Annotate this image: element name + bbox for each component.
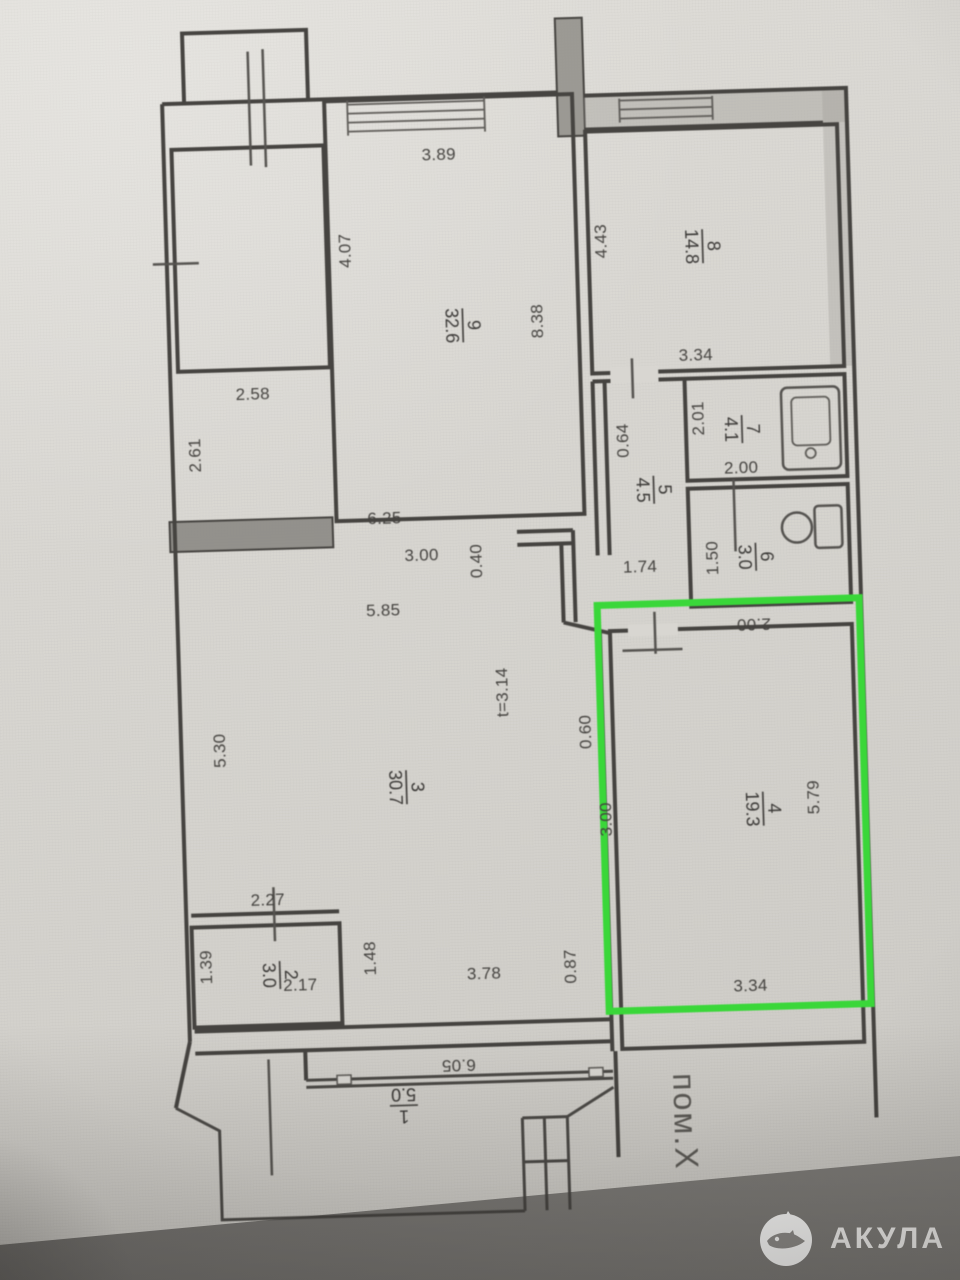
dim-room2-left: 1.39: [196, 950, 216, 985]
svg-text:19.3: 19.3: [742, 791, 763, 827]
door-opening-room4: [628, 623, 678, 636]
room-label-8: 8 14.8: [681, 228, 724, 264]
svg-text:4.1: 4.1: [721, 417, 742, 443]
radiator-mark-left: [337, 1075, 351, 1084]
toilet-icon: [781, 505, 842, 549]
dim-room9-right: 8.38: [527, 304, 547, 339]
room-label-3: 3 30.7: [385, 769, 428, 805]
svg-text:4: 4: [764, 803, 784, 814]
dim-060: 0.60: [575, 714, 595, 749]
highlight-room-4: [597, 598, 871, 1012]
dim-topleft-left: 2.61: [185, 438, 205, 473]
radiator-mark-right: [589, 1068, 603, 1077]
svg-text:9: 9: [464, 320, 484, 331]
photo-of-floor-plan: 9 32.6 8 14.8 7 4.1 5 4.5 6 3.0 3 30.7: [0, 0, 960, 1280]
dim-corridor-040: 0.40: [466, 544, 486, 579]
watermark-brand: АКУЛА: [830, 1222, 946, 1256]
room-topleft-walls: [171, 145, 330, 371]
dim-wc-width: 2.00: [736, 614, 771, 634]
floor-plan-drawing: 9 32.6 8 14.8 7 4.1 5 4.5 6 3.0 3 30.7: [130, 0, 897, 1271]
dim-087: 0.87: [560, 949, 580, 984]
dim-corridor-300: 3.00: [404, 545, 439, 565]
vent-shaft-top: [555, 18, 585, 137]
dim-room8-bottom: 3.34: [678, 345, 713, 365]
room-label-6: 6 3.0: [734, 542, 777, 571]
dim-room2-bottom: 2.17: [283, 975, 318, 995]
bathtub-icon: [781, 386, 841, 470]
watermark: АКУЛА: [757, 1210, 946, 1268]
window-room9: [347, 97, 485, 136]
door-opening-room8: [610, 366, 658, 383]
room-label-1: 1 5.0: [389, 1084, 418, 1127]
dim-room3-right: 3.00: [596, 802, 616, 837]
svg-text:6: 6: [757, 551, 777, 562]
dim-room4-right: 5.79: [803, 780, 823, 815]
dim-wc-depth: 1.50: [702, 541, 722, 576]
dim-room8-left: 4.43: [591, 224, 611, 259]
svg-text:5: 5: [655, 484, 675, 495]
svg-text:7: 7: [743, 423, 763, 434]
svg-text:30.7: 30.7: [385, 770, 406, 806]
room-label-4: 4 19.3: [742, 791, 785, 827]
svg-text:3.0: 3.0: [734, 544, 755, 570]
adjacent-room-label: пом.X: [666, 1073, 705, 1171]
room-label-9: 9 32.6: [441, 307, 484, 343]
bearing-wall-hatch: [170, 517, 334, 552]
svg-text:32.6: 32.6: [441, 308, 462, 344]
svg-text:1: 1: [399, 1106, 410, 1126]
dim-topleft-width: 2.58: [235, 384, 270, 404]
room-label-5: 5 4.5: [632, 475, 675, 504]
dim-room3-left: 5.30: [210, 733, 230, 768]
dim-corridor-585: 5.85: [366, 600, 401, 620]
room-label-7: 7 4.1: [721, 414, 764, 443]
dim-bath-depth: 2.01: [688, 401, 708, 436]
dim-t314: t=3.14: [492, 667, 512, 717]
svg-text:5.0: 5.0: [391, 1084, 417, 1105]
dim-hall-174: 1.74: [623, 557, 658, 577]
dim-room2-right: 1.48: [360, 941, 380, 976]
dim-bath-width: 2.00: [724, 458, 759, 478]
svg-text:4.5: 4.5: [632, 477, 653, 503]
svg-text:3.0: 3.0: [259, 963, 280, 989]
dim-room9-left: 4.07: [335, 233, 355, 268]
dim-balcony: 6.05: [441, 1055, 476, 1075]
svg-text:3: 3: [407, 782, 427, 793]
dim-room4-bottom: 3.34: [733, 976, 768, 996]
dim-room9-top: 3.89: [421, 144, 456, 164]
dim-hall-064: 0.64: [613, 423, 633, 458]
room-7-walls: [684, 374, 847, 481]
dim-corridor-625: 6.25: [367, 508, 402, 528]
dim-room3-bottom: 3.78: [467, 964, 502, 984]
shark-logo: [757, 1210, 815, 1268]
svg-text:8: 8: [703, 241, 723, 252]
svg-text:14.8: 14.8: [681, 229, 702, 265]
interior-walls: [176, 374, 878, 1170]
dim-room2-top: 2.27: [250, 890, 285, 910]
